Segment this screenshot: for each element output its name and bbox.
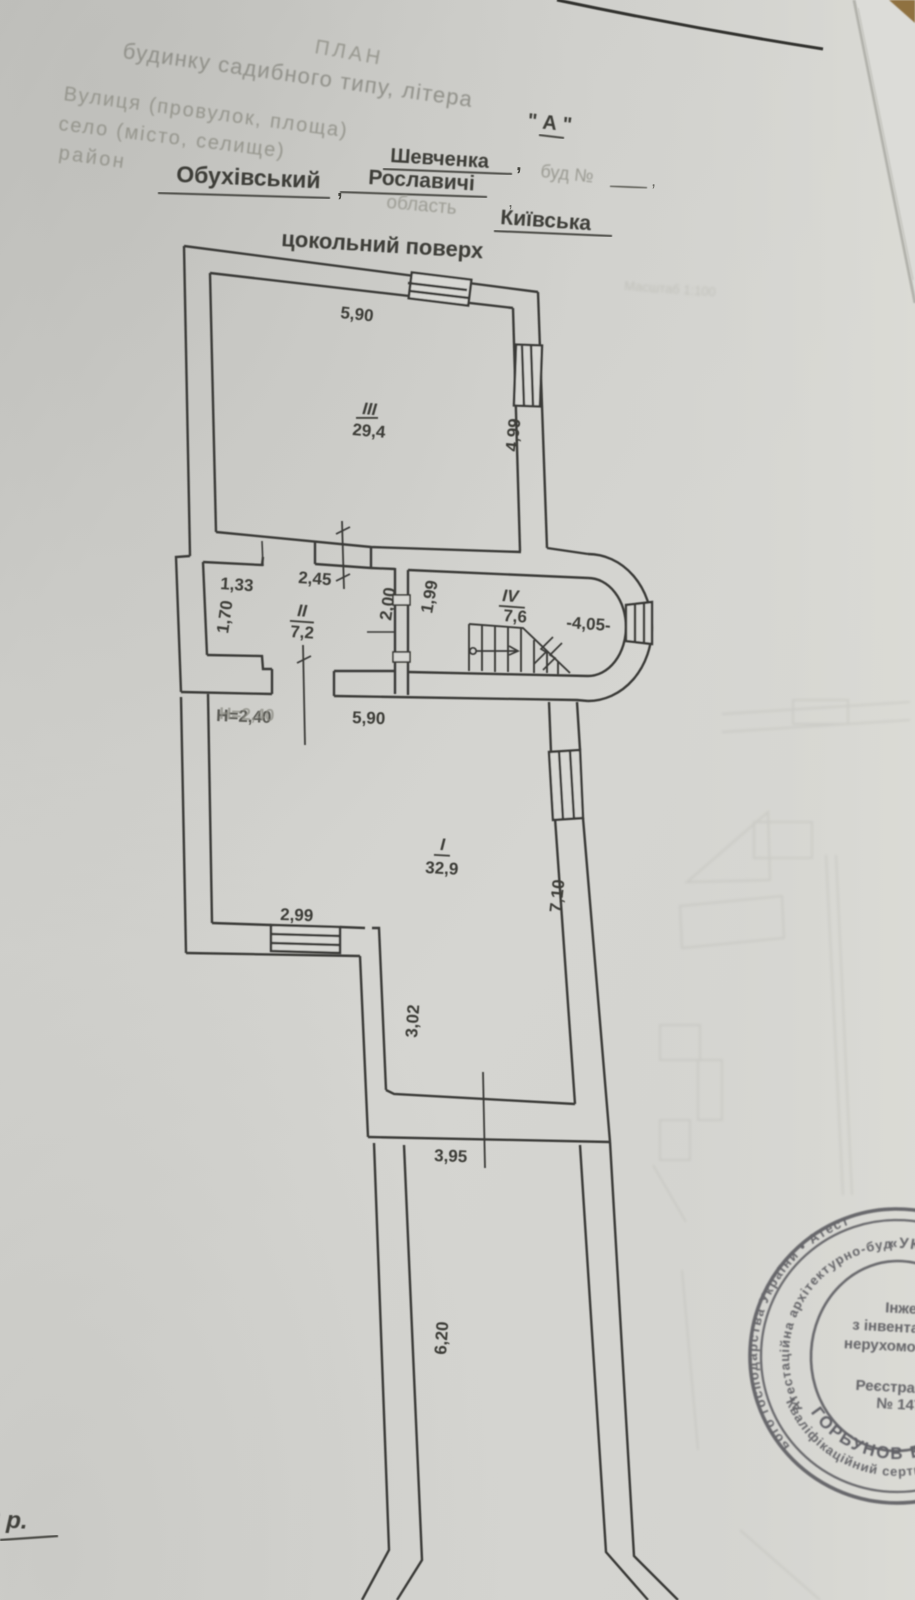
svg-text:3,02: 3,02	[402, 1004, 423, 1038]
svg-text:2,99: 2,99	[280, 905, 314, 925]
svg-text:32,9: 32,9	[425, 858, 459, 879]
svg-text:7,6: 7,6	[503, 606, 528, 627]
svg-text:№ 1474: № 1474	[876, 1395, 915, 1415]
svg-text:29,4: 29,4	[352, 420, 387, 442]
svg-text:Інженер: Інженер	[885, 1299, 915, 1319]
svg-text:Н=2,40: Н=2,40	[219, 704, 275, 725]
svg-text:IV: IV	[502, 586, 521, 606]
svg-text:6,20: 6,20	[431, 1321, 452, 1355]
svg-text:5,90: 5,90	[352, 708, 386, 728]
svg-text:5,90: 5,90	[340, 303, 375, 325]
svg-text:" А ": " А "	[526, 110, 573, 137]
svg-text:2 р.: 2 р.	[0, 1506, 28, 1534]
svg-text:-4,05-: -4,05-	[566, 613, 612, 635]
svg-text:3,95: 3,95	[434, 1146, 468, 1166]
svg-text:4,99: 4,99	[502, 418, 524, 453]
svg-text:7,2: 7,2	[290, 622, 315, 643]
svg-text:1,33: 1,33	[220, 574, 254, 595]
svg-text:,: ,	[337, 179, 343, 201]
svg-text:7,10: 7,10	[546, 879, 568, 914]
svg-text:2,45: 2,45	[298, 568, 332, 589]
